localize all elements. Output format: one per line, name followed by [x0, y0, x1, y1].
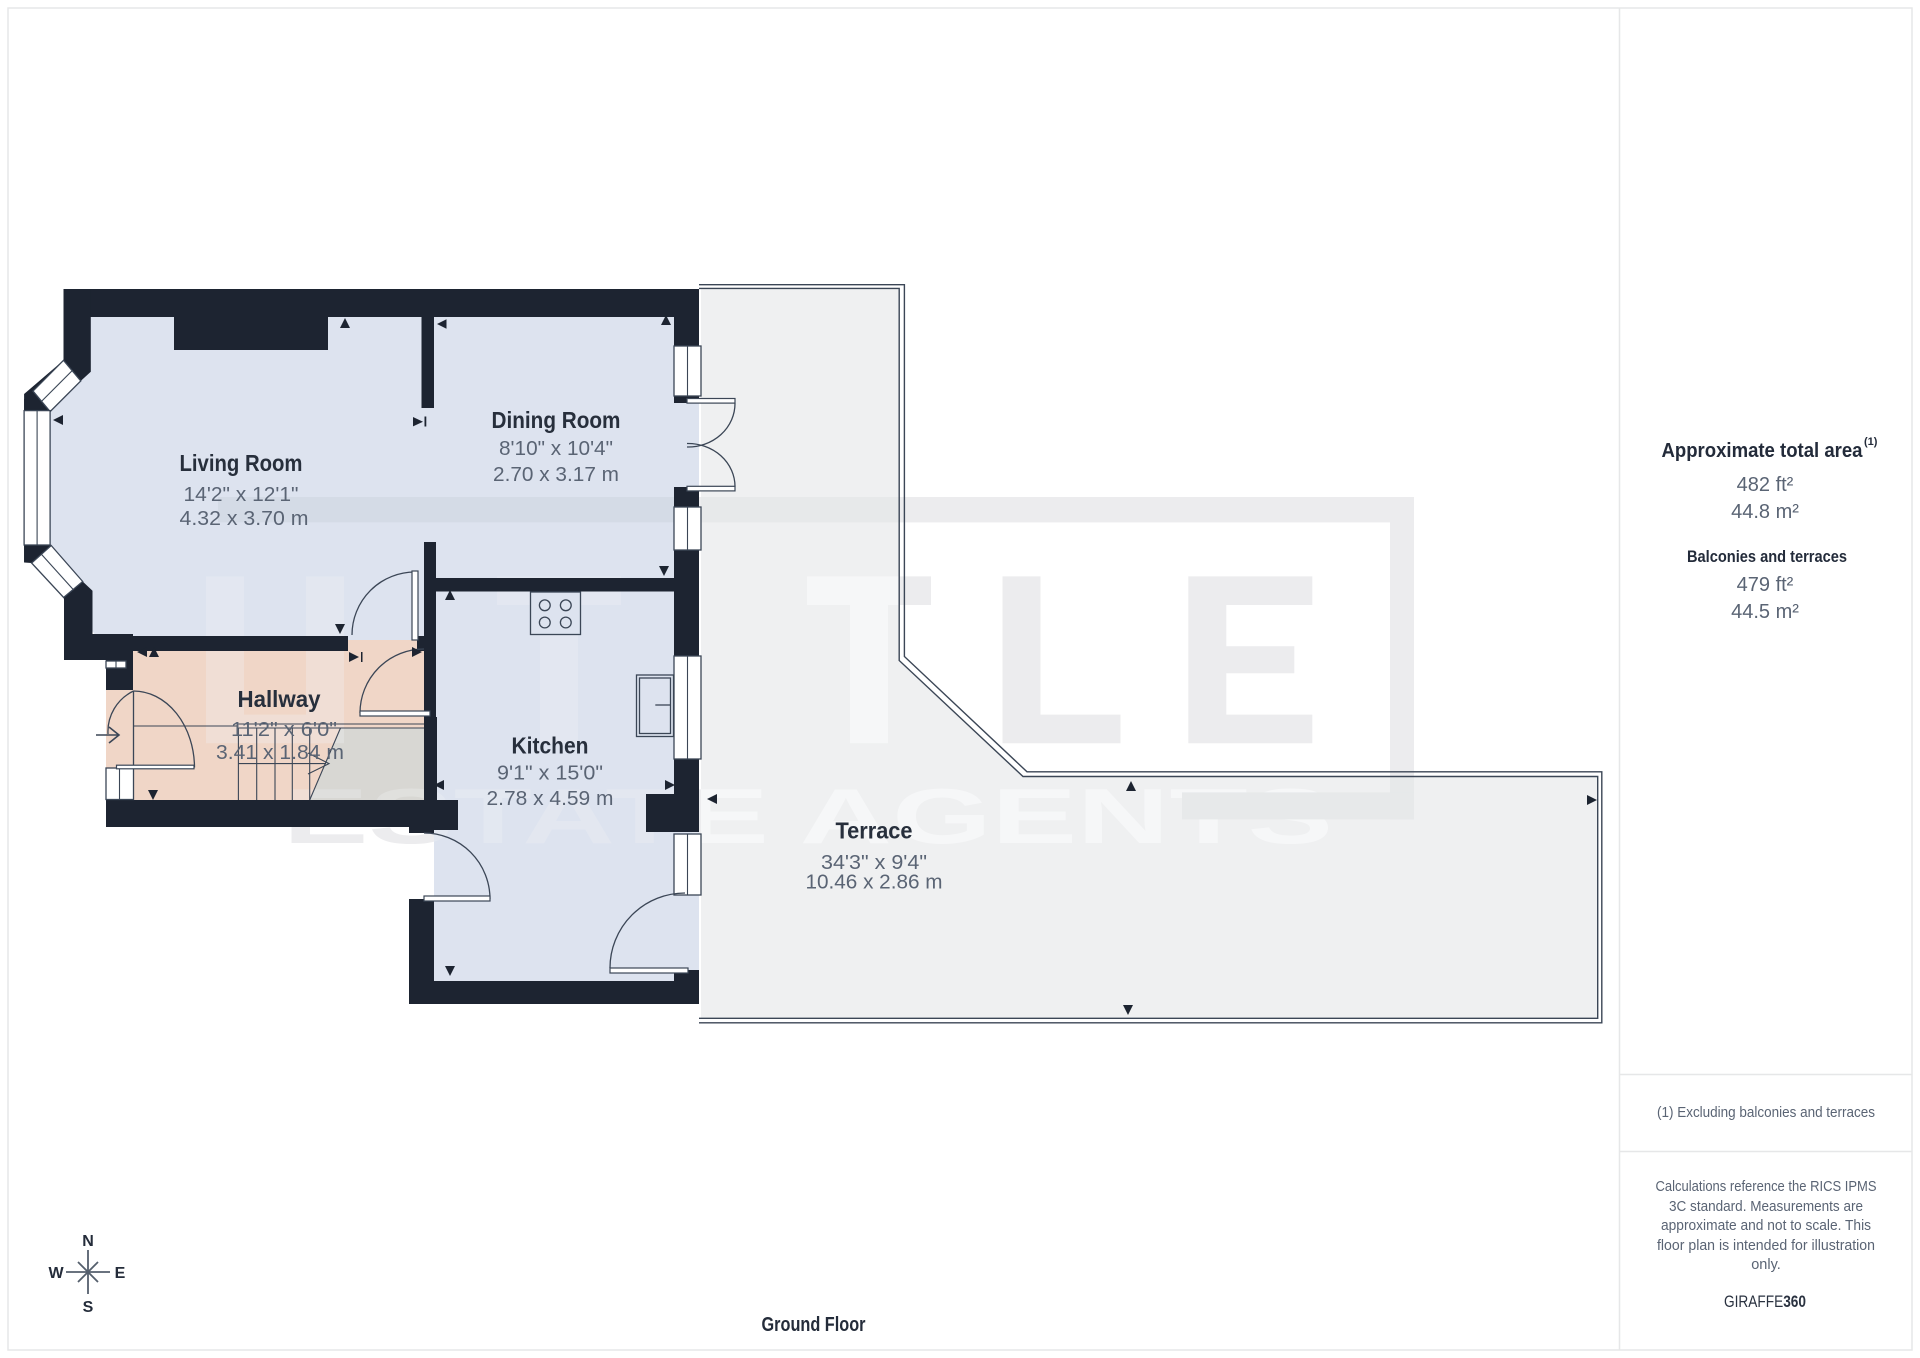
svg-text:W: W	[48, 1265, 64, 1282]
svg-text:8'10" x 10'4": 8'10" x 10'4"	[499, 437, 613, 460]
svg-text:GIRAFFE360: GIRAFFE360	[1724, 1292, 1806, 1311]
svg-text:44.5 m²: 44.5 m²	[1731, 601, 1799, 623]
svg-text:Calculations reference the RIC: Calculations reference the RICS IPMS	[1656, 1179, 1877, 1195]
svg-text:Ground Floor: Ground Floor	[762, 1314, 866, 1336]
svg-text:N: N	[82, 1233, 94, 1250]
svg-text:(1): (1)	[1864, 436, 1878, 448]
svg-text:S: S	[83, 1299, 94, 1316]
svg-text:approximate and not to scale.: approximate and not to scale. This	[1661, 1218, 1871, 1234]
svg-text:4.32 x 3.70 m: 4.32 x 3.70 m	[180, 507, 309, 530]
svg-text:482 ft²: 482 ft²	[1737, 474, 1794, 496]
svg-text:Hallway: Hallway	[238, 686, 321, 712]
svg-text:2.78 x 4.59 m: 2.78 x 4.59 m	[487, 787, 614, 810]
svg-text:Approximate total area: Approximate total area	[1662, 440, 1864, 462]
svg-text:Living Room: Living Room	[180, 450, 303, 476]
svg-text:Terrace: Terrace	[836, 818, 913, 844]
svg-text:(1) Excluding balconies and te: (1) Excluding balconies and terraces	[1657, 1105, 1875, 1121]
svg-text:3.41 x 1.84 m: 3.41 x 1.84 m	[216, 741, 344, 764]
svg-text:Balconies and terraces: Balconies and terraces	[1687, 547, 1847, 566]
svg-text:9'1" x 15'0": 9'1" x 15'0"	[497, 762, 603, 785]
svg-text:44.8 m²: 44.8 m²	[1731, 501, 1799, 523]
svg-text:479 ft²: 479 ft²	[1737, 574, 1794, 596]
svg-text:Kitchen: Kitchen	[512, 733, 589, 759]
svg-text:14'2" x 12'1": 14'2" x 12'1"	[184, 483, 299, 506]
svg-text:2.70 x 3.17 m: 2.70 x 3.17 m	[493, 463, 619, 486]
svg-text:floor plan is intended for ill: floor plan is intended for illustration	[1657, 1238, 1875, 1254]
svg-text:only.: only.	[1751, 1257, 1781, 1273]
svg-text:3C standard. Measurements are: 3C standard. Measurements are	[1669, 1199, 1863, 1215]
svg-text:Dining Room: Dining Room	[492, 407, 621, 433]
svg-text:E: E	[115, 1265, 126, 1282]
svg-text:11'2" x 6'0": 11'2" x 6'0"	[231, 718, 337, 741]
svg-text:10.46 x 2.86 m: 10.46 x 2.86 m	[806, 871, 943, 894]
